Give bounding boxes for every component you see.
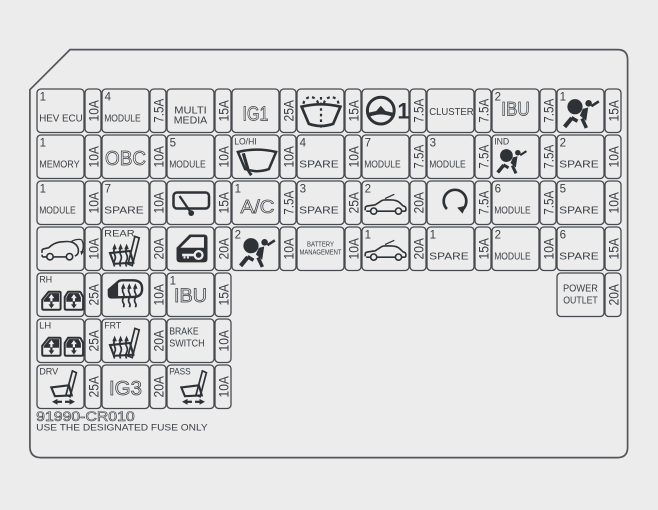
svg-text:IG1: IG1 — [243, 104, 269, 126]
svg-text:SPARE: SPARE — [299, 160, 339, 171]
svg-text:15A: 15A — [216, 283, 232, 305]
svg-text:7: 7 — [105, 183, 111, 195]
svg-text:7.5A: 7.5A — [476, 144, 492, 169]
svg-text:6: 6 — [560, 229, 566, 241]
svg-text:RH: RH — [39, 275, 52, 285]
svg-text:20A: 20A — [606, 283, 622, 305]
svg-text:BATTERY: BATTERY — [307, 242, 334, 249]
svg-text:1: 1 — [365, 229, 371, 241]
svg-text:HEV ECU: HEV ECU — [39, 114, 82, 125]
svg-text:7.5A: 7.5A — [541, 144, 557, 169]
svg-text:20A: 20A — [216, 237, 232, 259]
svg-text:10A: 10A — [151, 145, 167, 167]
svg-text:MODULE: MODULE — [494, 206, 531, 217]
svg-text:10A: 10A — [281, 237, 297, 259]
svg-text:2: 2 — [495, 91, 501, 103]
svg-text:1: 1 — [40, 183, 46, 195]
svg-text:2: 2 — [495, 229, 501, 241]
svg-text:20A: 20A — [411, 191, 427, 213]
svg-text:10A: 10A — [346, 237, 362, 259]
svg-text:15A: 15A — [476, 237, 492, 259]
svg-text:20A: 20A — [151, 237, 167, 259]
svg-text:7.5A: 7.5A — [151, 98, 167, 123]
svg-text:10A: 10A — [346, 145, 362, 167]
svg-text:25A: 25A — [86, 375, 102, 397]
svg-text:10A: 10A — [216, 375, 232, 397]
svg-text:1: 1 — [235, 183, 241, 195]
svg-text:4: 4 — [105, 91, 112, 103]
svg-text:MEMORY: MEMORY — [39, 160, 80, 171]
svg-text:MANAGEMENT: MANAGEMENT — [300, 250, 343, 257]
svg-text:6: 6 — [495, 183, 501, 195]
svg-text:10A: 10A — [216, 329, 232, 351]
svg-text:SPARE: SPARE — [559, 160, 599, 171]
svg-text:7.5A: 7.5A — [411, 98, 427, 123]
svg-text:3: 3 — [430, 137, 436, 149]
svg-text:OBC: OBC — [105, 147, 146, 170]
svg-text:15A: 15A — [216, 191, 232, 213]
svg-text:IBU: IBU — [501, 100, 530, 121]
svg-text:1: 1 — [560, 91, 566, 103]
svg-text:1: 1 — [40, 91, 46, 103]
svg-text:1: 1 — [397, 98, 409, 123]
svg-text:LH: LH — [39, 321, 51, 331]
svg-text:DRV: DRV — [39, 367, 59, 377]
svg-text:IBU: IBU — [174, 286, 207, 307]
svg-text:7.5A: 7.5A — [281, 190, 297, 215]
svg-text:MODULE: MODULE — [429, 160, 466, 171]
svg-text:7.5A: 7.5A — [411, 144, 427, 169]
svg-text:SPARE: SPARE — [104, 206, 144, 217]
svg-text:1: 1 — [430, 229, 436, 241]
svg-text:SPARE: SPARE — [559, 252, 599, 263]
svg-text:5: 5 — [560, 183, 566, 195]
svg-text:10A: 10A — [86, 191, 102, 213]
svg-text:10A: 10A — [86, 99, 102, 121]
svg-text:IND: IND — [494, 137, 509, 147]
svg-text:LO/HI: LO/HI — [234, 137, 257, 147]
svg-text:10A: 10A — [606, 191, 622, 213]
svg-text:25A: 25A — [86, 329, 102, 351]
svg-text:25A: 25A — [346, 191, 362, 213]
svg-text:FRT: FRT — [104, 321, 121, 331]
svg-text:MODULE: MODULE — [104, 114, 141, 125]
svg-text:SWITCH: SWITCH — [169, 339, 205, 350]
svg-text:4: 4 — [300, 137, 307, 149]
svg-text:10A: 10A — [86, 145, 102, 167]
svg-text:5: 5 — [170, 137, 176, 149]
svg-text:20A: 20A — [151, 375, 167, 397]
svg-text:A/C: A/C — [241, 196, 275, 217]
svg-text:OUTLET: OUTLET — [563, 296, 598, 307]
svg-text:7.5A: 7.5A — [476, 98, 492, 123]
svg-text:10A: 10A — [86, 237, 102, 259]
svg-text:25A: 25A — [281, 99, 297, 121]
svg-text:15A: 15A — [606, 99, 622, 121]
svg-text:BRAKE: BRAKE — [169, 327, 199, 338]
svg-text:MODULE: MODULE — [494, 252, 531, 263]
svg-text:MEDIA: MEDIA — [174, 116, 208, 127]
svg-text:CLUSTER: CLUSTER — [429, 107, 474, 118]
svg-text:10A: 10A — [281, 145, 297, 167]
svg-text:10A: 10A — [541, 237, 557, 259]
svg-text:IG3: IG3 — [109, 377, 142, 400]
svg-text:7.5A: 7.5A — [541, 190, 557, 215]
svg-text:MODULE: MODULE — [364, 160, 401, 171]
svg-text:MODULE: MODULE — [39, 206, 76, 217]
svg-text:25A: 25A — [86, 283, 102, 305]
svg-text:2: 2 — [235, 229, 241, 241]
svg-text:20A: 20A — [151, 329, 167, 351]
svg-text:USE THE DESIGNATED FUSE ONLY: USE THE DESIGNATED FUSE ONLY — [36, 422, 208, 432]
svg-text:POWER: POWER — [563, 284, 598, 295]
svg-text:15A: 15A — [606, 237, 622, 259]
svg-text:REAR: REAR — [104, 229, 135, 239]
svg-text:7: 7 — [365, 137, 371, 149]
svg-text:7.5A: 7.5A — [541, 98, 557, 123]
svg-text:10A: 10A — [216, 145, 232, 167]
svg-text:10A: 10A — [606, 145, 622, 167]
svg-text:SPARE: SPARE — [299, 206, 339, 217]
svg-text:1: 1 — [40, 137, 46, 149]
svg-text:10A: 10A — [151, 191, 167, 213]
svg-text:3: 3 — [300, 183, 306, 195]
svg-text:2: 2 — [365, 183, 371, 195]
svg-text:10A: 10A — [151, 283, 167, 305]
svg-text:20A: 20A — [411, 237, 427, 259]
svg-text:15A: 15A — [346, 99, 362, 121]
svg-text:2: 2 — [560, 137, 566, 149]
svg-text:PASS: PASS — [169, 367, 191, 377]
svg-text:15A: 15A — [216, 99, 232, 121]
svg-text:7.5A: 7.5A — [476, 190, 492, 215]
svg-text:MODULE: MODULE — [169, 160, 206, 171]
svg-text:SPARE: SPARE — [429, 252, 469, 263]
svg-text:SPARE: SPARE — [559, 206, 599, 217]
